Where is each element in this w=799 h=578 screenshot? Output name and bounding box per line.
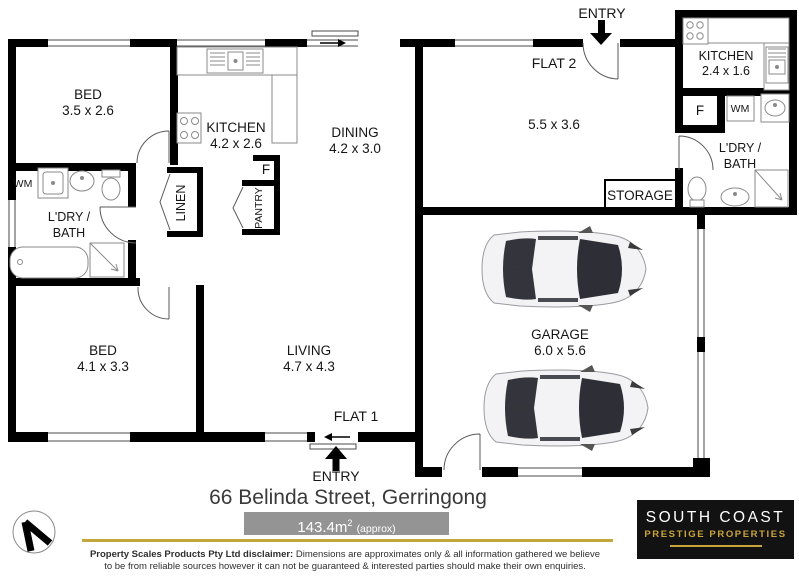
area-value: 143.4m xyxy=(297,519,347,536)
agency-name-line1: SOUTH COAST xyxy=(637,509,794,527)
agency-logo: SOUTH COAST PRESTIGE PROPERTIES xyxy=(637,500,794,559)
car-top xyxy=(482,226,646,312)
divider-line xyxy=(82,539,613,542)
dining-label: DINING xyxy=(331,125,378,140)
bath1-label-1: L'DRY / xyxy=(48,210,91,224)
dining-dims: 4.2 x 3.0 xyxy=(329,141,381,156)
flat2-dims: 5.5 x 3.6 xyxy=(528,117,580,132)
wm1-label: WM xyxy=(14,178,33,190)
kitchen1-label: KITCHEN xyxy=(206,120,265,135)
garage-dims: 6.0 x 5.6 xyxy=(534,343,586,358)
disclaimer-lead: Property Scales Products Pty Ltd disclai… xyxy=(90,549,293,560)
floorplan-page: BED 3.5 x 2.6 KITCHEN 4.2 x 2.6 DINING 4… xyxy=(0,0,799,578)
storage-label: STORAGE xyxy=(607,188,673,203)
flat1-entry-label: ENTRY xyxy=(312,468,360,484)
bath1-label-2: BATH xyxy=(53,226,85,240)
north-compass xyxy=(10,508,58,556)
flat2-label: FLAT 2 xyxy=(532,55,577,71)
logo-underline xyxy=(670,545,762,547)
garage-label: GARAGE xyxy=(531,327,589,342)
disclaimer-text: Property Scales Products Pty Ltd disclai… xyxy=(85,549,605,572)
bath2-label-2: BATH xyxy=(724,157,756,171)
agency-name-line2: PRESTIGE PROPERTIES xyxy=(637,529,794,540)
living-dims: 4.7 x 4.3 xyxy=(283,359,335,374)
fridge1-label: F xyxy=(262,162,270,177)
property-address: 66 Belinda Street, Gerringong xyxy=(120,486,576,510)
pantry-label: PANTRY xyxy=(253,187,265,229)
flat1-label: FLAT 1 xyxy=(334,408,379,424)
bed1-dims: 3.5 x 2.6 xyxy=(62,103,114,118)
floor-area-badge: 143.4m2 (approx) xyxy=(244,512,449,535)
fixtures xyxy=(10,18,789,278)
room-labels: BED 3.5 x 2.6 KITCHEN 4.2 x 2.6 DINING 4… xyxy=(14,5,762,484)
car-bottom xyxy=(484,365,648,451)
area-superscript: 2 xyxy=(347,518,352,528)
flat2-entry-label: ENTRY xyxy=(578,5,626,21)
kitchen2-dims: 2.4 x 1.6 xyxy=(702,64,750,78)
bed2-label: BED xyxy=(89,343,117,358)
kitchen1-dims: 4.2 x 2.6 xyxy=(210,136,262,151)
living-label: LIVING xyxy=(287,343,331,358)
fridge2-label: F xyxy=(696,103,704,118)
entry-arrow-flat2 xyxy=(598,20,605,33)
bed2-dims: 4.1 x 3.3 xyxy=(77,359,129,374)
wm2-label: WM xyxy=(731,103,750,115)
linen-label: LINEN xyxy=(174,185,188,222)
area-approx: (approx) xyxy=(357,523,396,535)
bed1-label: BED xyxy=(74,87,102,102)
walls xyxy=(8,10,797,477)
floorplan-drawing: BED 3.5 x 2.6 KITCHEN 4.2 x 2.6 DINING 4… xyxy=(0,0,799,485)
bath2-label-1: L'DRY / xyxy=(719,141,762,155)
kitchen2-label: KITCHEN xyxy=(699,49,754,63)
